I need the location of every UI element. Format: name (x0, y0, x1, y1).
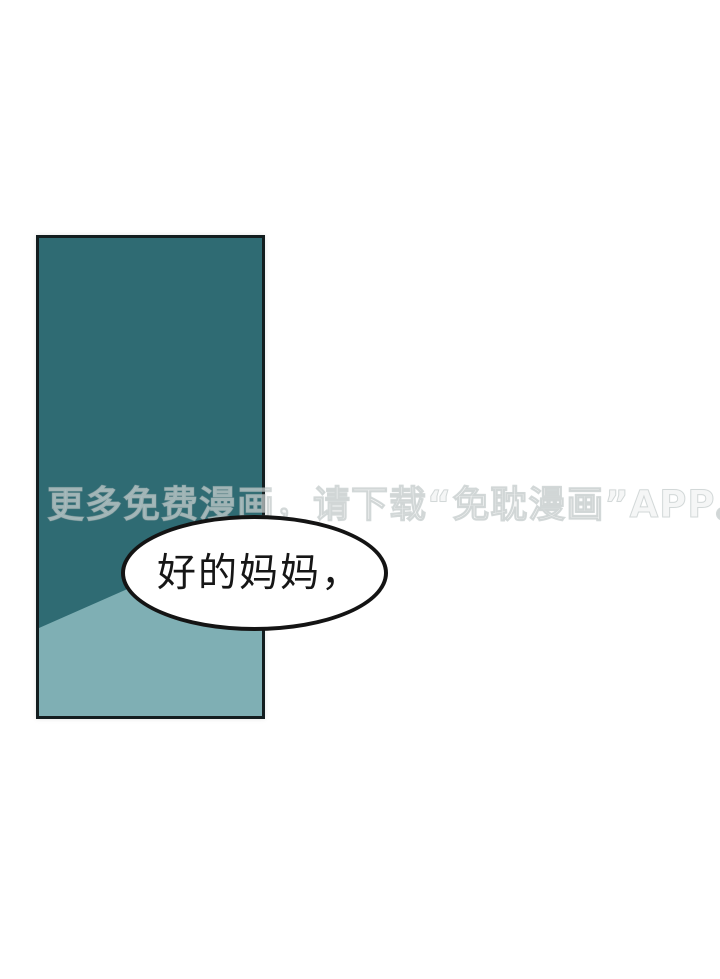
panel-light-wedge (39, 238, 262, 716)
comic-page: 更多免费漫画，请下载“免耽漫画”APP。 好的妈妈， (0, 0, 720, 979)
speech-bubble-text: 好的妈妈， (147, 554, 362, 593)
comic-panel (36, 235, 265, 719)
speech-bubble: 好的妈妈， (121, 515, 388, 631)
